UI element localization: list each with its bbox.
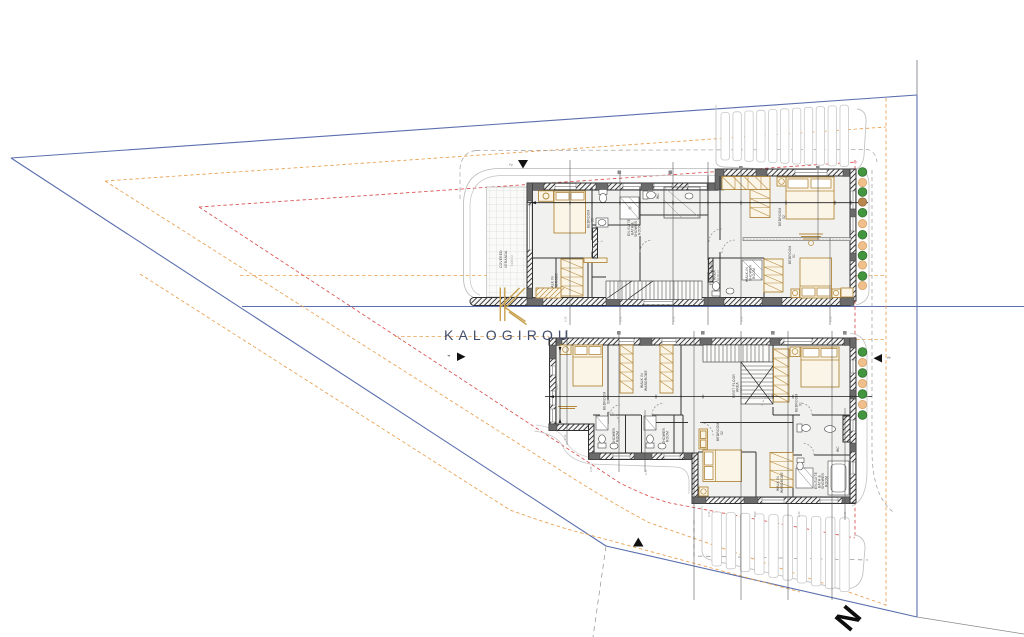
svg-text:ROOM: ROOM <box>666 431 670 442</box>
svg-text:6.35: 6.35 <box>644 469 648 475</box>
svg-text:WARDROBE: WARDROBE <box>644 370 648 391</box>
svg-text:01: 01 <box>799 402 803 406</box>
svg-text:6.30: 6.30 <box>829 316 833 322</box>
svg-text:0.30: 0.30 <box>753 511 757 517</box>
svg-text:WC: WC <box>656 193 660 199</box>
svg-text:0.30: 0.30 <box>843 511 847 517</box>
svg-text:ROOM: ROOM <box>752 268 756 279</box>
svg-text:WARDROBE: WARDROBE <box>780 472 784 493</box>
svg-text:0.30: 0.30 <box>740 316 744 322</box>
svg-text:ROOM: ROOM <box>825 476 829 487</box>
svg-text:03: 03 <box>591 218 595 222</box>
svg-text:0.30: 0.30 <box>619 316 623 322</box>
svg-text:6.33: 6.33 <box>563 434 567 440</box>
svg-text:3.95: 3.95 <box>555 384 559 390</box>
svg-text:WC: WC <box>836 446 840 452</box>
svg-text:VERANDA: VERANDA <box>504 250 508 268</box>
svg-text:6.30: 6.30 <box>564 316 568 322</box>
svg-text:KALOGIROU: KALOGIROU <box>444 327 573 343</box>
svg-text:01: 01 <box>792 254 796 258</box>
svg-text:6.30: 6.30 <box>672 316 676 322</box>
svg-text:02: 02 <box>720 431 724 435</box>
svg-text:11.00 m²: 11.00 m² <box>510 255 514 266</box>
svg-text:COVERED: COVERED <box>499 250 503 268</box>
svg-text:6.30: 6.30 <box>797 511 801 517</box>
svg-text:02: 02 <box>782 215 786 219</box>
svg-text:03: 03 <box>607 400 611 404</box>
svg-text:6.35: 6.35 <box>589 466 593 472</box>
svg-text:94.60 m²: 94.60 m² <box>716 270 720 281</box>
svg-text:6.30: 6.30 <box>707 511 711 517</box>
svg-text:ROOM: ROOM <box>638 224 642 235</box>
